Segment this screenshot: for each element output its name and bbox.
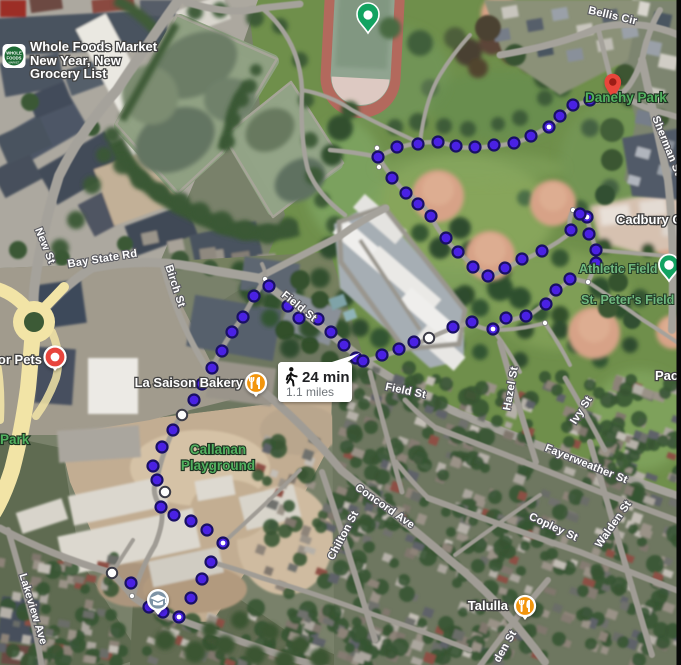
svg-text:Playground: Playground [181, 458, 255, 473]
svg-text:Danehy Park: Danehy Park [585, 90, 667, 105]
svg-text:24 min: 24 min [302, 369, 350, 386]
svg-text:Pac: Pac [655, 368, 678, 383]
svg-text:La Saison Bakery: La Saison Bakery [135, 375, 244, 390]
svg-text:Grocery List: Grocery List [30, 66, 107, 81]
svg-text:Park: Park [0, 432, 30, 447]
svg-text:1.1 miles: 1.1 miles [286, 385, 334, 399]
svg-text:Athletic Field: Athletic Field [579, 262, 657, 276]
svg-text:or Pets: or Pets [0, 352, 42, 367]
svg-text:Callanan: Callanan [190, 442, 246, 457]
svg-text:Talulla: Talulla [468, 598, 509, 613]
svg-text:MARKET: MARKET [9, 61, 20, 65]
svg-text:Cadbury Co: Cadbury Co [616, 212, 681, 227]
svg-text:St. Peter's Field: St. Peter's Field [581, 293, 674, 307]
svg-text:Whole Foods Market: Whole Foods Market [30, 39, 158, 54]
svg-text:FOODS: FOODS [7, 56, 22, 61]
